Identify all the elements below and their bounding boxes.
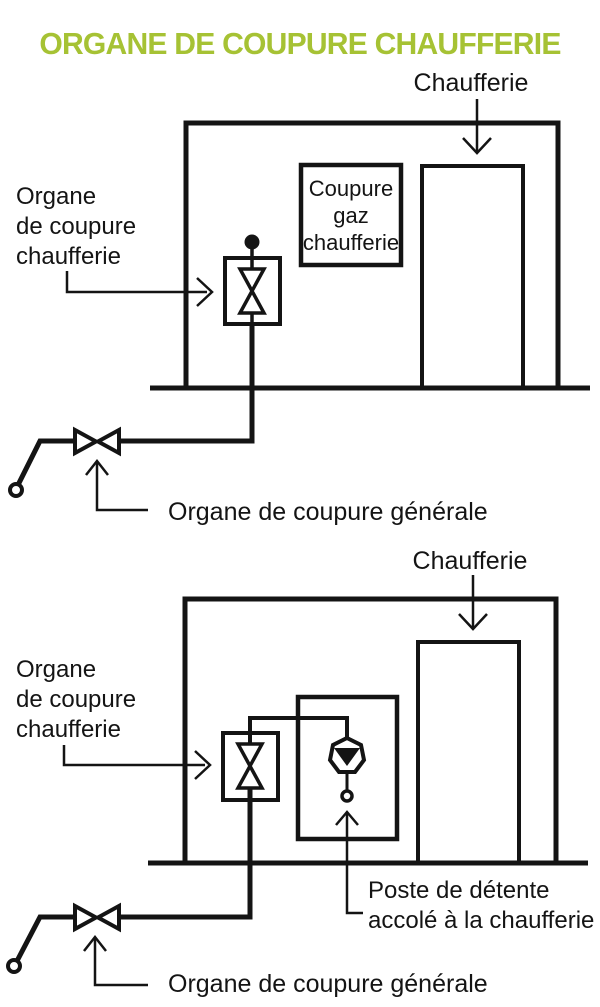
regulator-icon	[330, 738, 364, 801]
infographic: ORGANE DE COUPURE CHAUFFERIE Chaufferie …	[0, 0, 600, 1007]
bottom-chaufferie-label: Chaufferie	[390, 546, 550, 576]
top-organe-chaufferie-label: Organe de coupure chaufferie	[16, 182, 136, 272]
coupure-gaz-label: Coupure gaz chaufferie	[301, 165, 401, 265]
chaufferie-arrow-icon	[459, 575, 487, 629]
valve-chaufferie-icon	[225, 235, 280, 325]
page-title: ORGANE DE COUPURE CHAUFFERIE	[9, 26, 591, 62]
door-outline	[418, 642, 519, 863]
bottom-organe-generale-label: Organe de coupure générale	[168, 969, 488, 999]
top-diagram	[10, 99, 590, 510]
poste-detente-label: Poste de détente accolé à la chaufferie	[368, 876, 594, 936]
label-arrow-generale	[84, 937, 148, 985]
chaufferie-arrow-icon	[463, 99, 491, 153]
valve-generale-icon	[10, 430, 119, 496]
label-arrow-generale	[86, 461, 148, 510]
bottom-organe-chaufferie-label: Organe de coupure chaufferie	[16, 655, 136, 745]
label-arrow-chaufferie-valve	[67, 271, 212, 306]
top-organe-generale-label: Organe de coupure générale	[168, 497, 488, 527]
valve-generale-icon	[8, 906, 119, 972]
label-arrow-chaufferie-valve	[64, 745, 210, 779]
top-chaufferie-label: Chaufferie	[391, 68, 551, 98]
door-outline	[422, 166, 523, 388]
